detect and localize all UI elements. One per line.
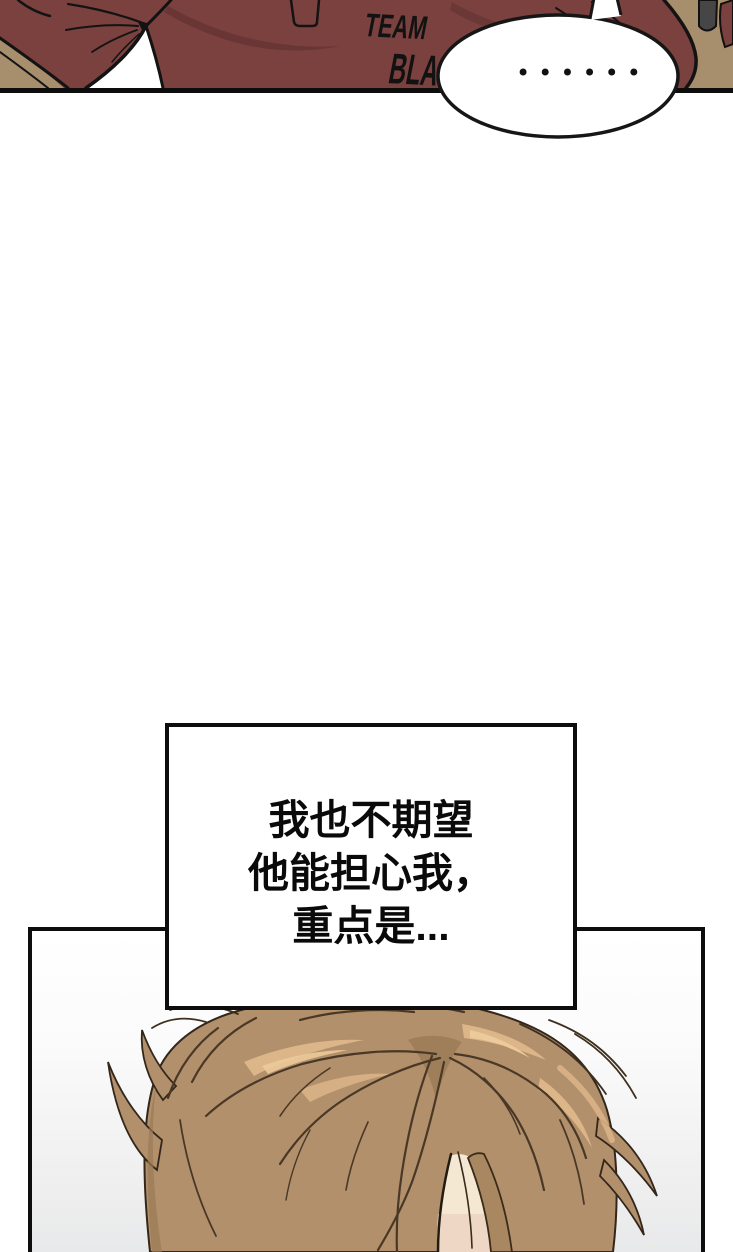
- narration-line-2: 他能担心我，: [248, 847, 494, 900]
- hair: [144, 996, 616, 1252]
- narration-line-3: 重点是...: [292, 900, 449, 953]
- shirt-edge-strip: [720, 0, 733, 47]
- narration-line-1: 我也不期望: [269, 794, 474, 847]
- narration-box: 我也不期望 他能担心我， 重点是...: [165, 723, 577, 1010]
- top-panel: TEAM BLA ••••••: [0, 0, 733, 160]
- dark-corner-object: [699, 0, 717, 31]
- shirt-text-bla: BLA: [385, 46, 443, 96]
- shirt-text-team: TEAM: [361, 7, 430, 47]
- ellipsis-dots: ••••••: [516, 59, 649, 87]
